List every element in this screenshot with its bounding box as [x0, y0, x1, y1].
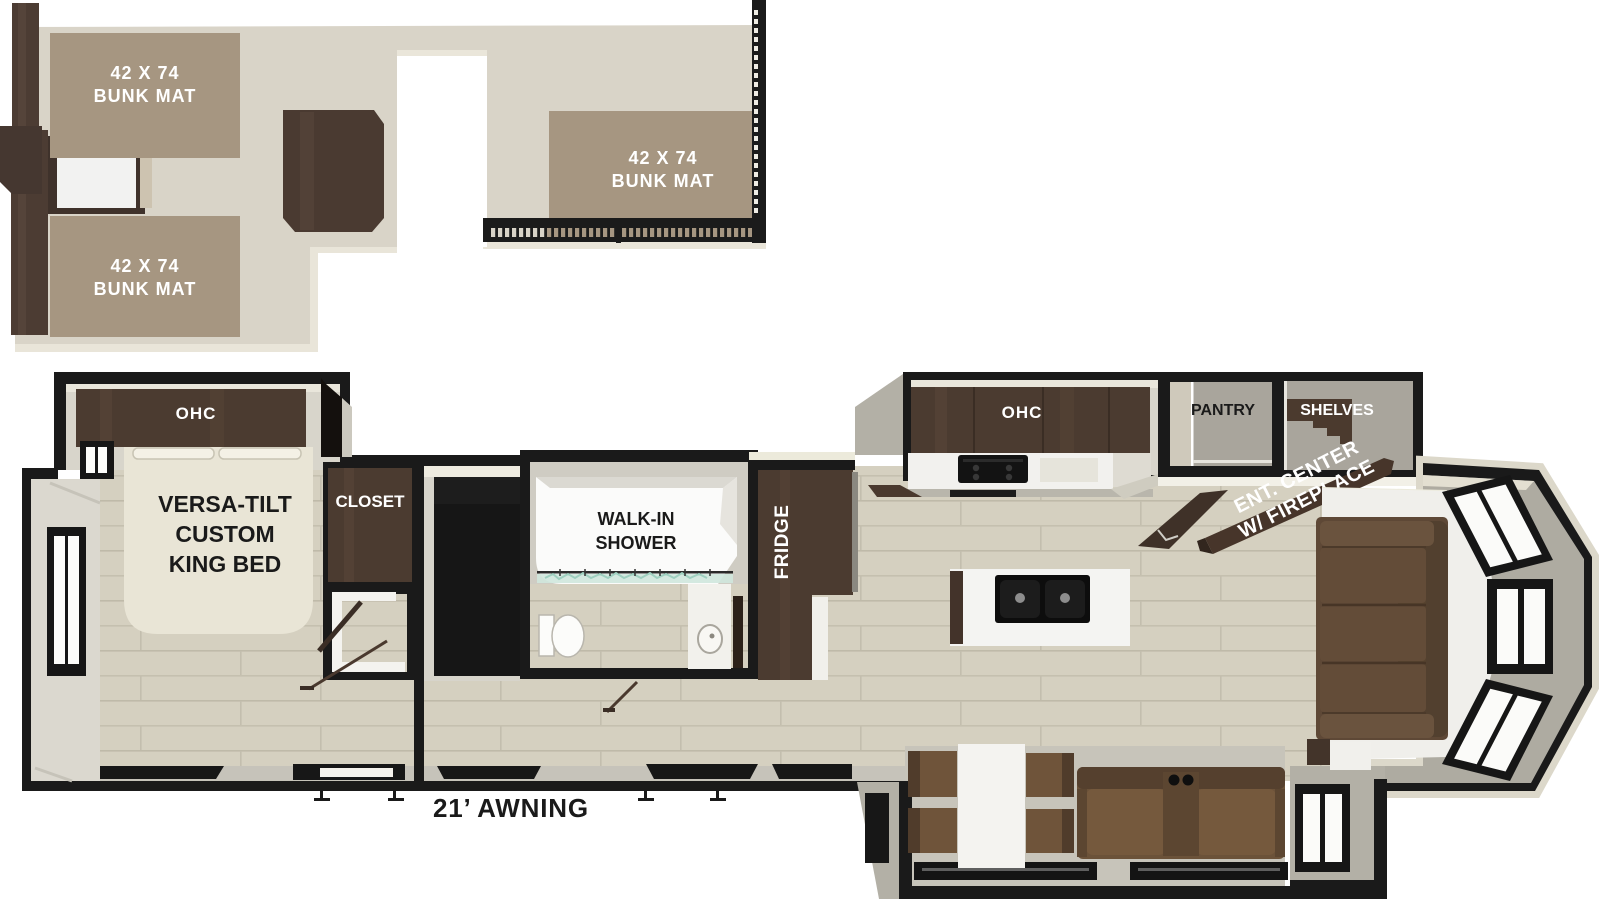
svg-text:CUSTOM: CUSTOM — [175, 521, 274, 547]
svg-text:VERSA-TILT: VERSA-TILT — [158, 491, 292, 517]
svg-text:OHC: OHC — [1002, 403, 1043, 422]
svg-text:21’ AWNING: 21’ AWNING — [433, 793, 589, 823]
svg-text:42 X 74: 42 X 74 — [110, 63, 179, 83]
svg-text:BUNK MAT: BUNK MAT — [94, 279, 197, 299]
svg-text:SHELVES: SHELVES — [1300, 402, 1374, 419]
svg-text:42 X 74: 42 X 74 — [110, 256, 179, 276]
svg-text:SHOWER: SHOWER — [596, 533, 677, 553]
svg-text:BUNK MAT: BUNK MAT — [94, 86, 197, 106]
svg-text:FRIDGE: FRIDGE — [772, 505, 793, 580]
svg-text:BUNK MAT: BUNK MAT — [612, 171, 715, 191]
svg-text:42 X 74: 42 X 74 — [628, 148, 697, 168]
svg-text:WALK-IN: WALK-IN — [598, 509, 675, 529]
svg-text:OHC: OHC — [176, 404, 217, 423]
svg-text:PANTRY: PANTRY — [1191, 402, 1255, 419]
svg-text:KING BED: KING BED — [169, 551, 281, 577]
svg-text:CLOSET: CLOSET — [336, 492, 406, 511]
